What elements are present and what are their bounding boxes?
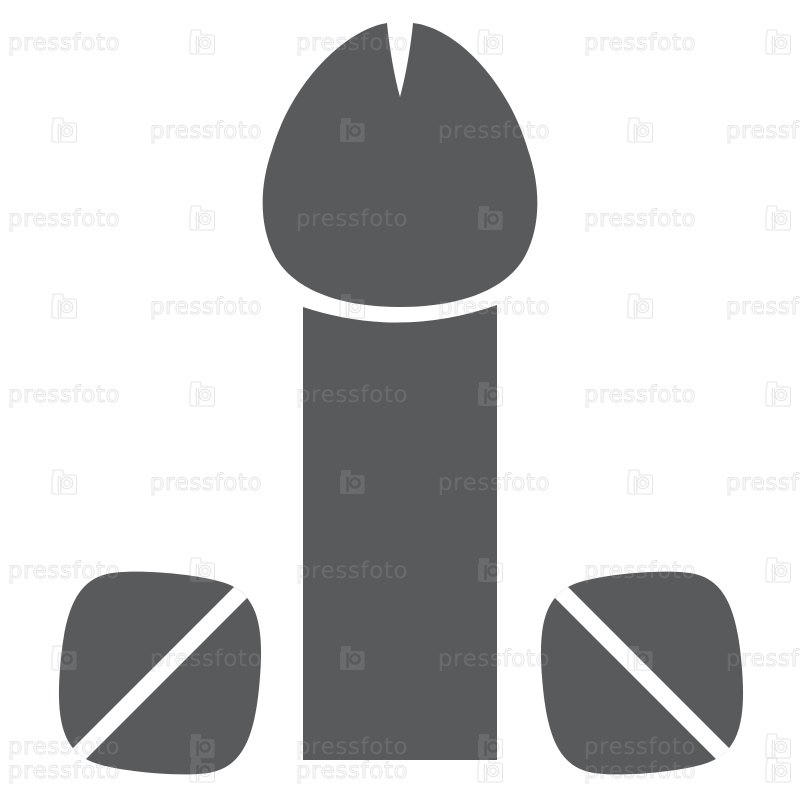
- stock-preview-image: pressfoto pressfoto pressfo: [0, 0, 800, 800]
- watermark-tile-layer: [0, 0, 800, 800]
- watermark-text: pressfoto: [8, 758, 120, 784]
- watermark-text: pressfoto: [584, 758, 696, 784]
- watermark-text: pressfoto: [296, 758, 408, 784]
- stock-preview-canvas: pressfoto pressfoto pressfo: [0, 0, 800, 800]
